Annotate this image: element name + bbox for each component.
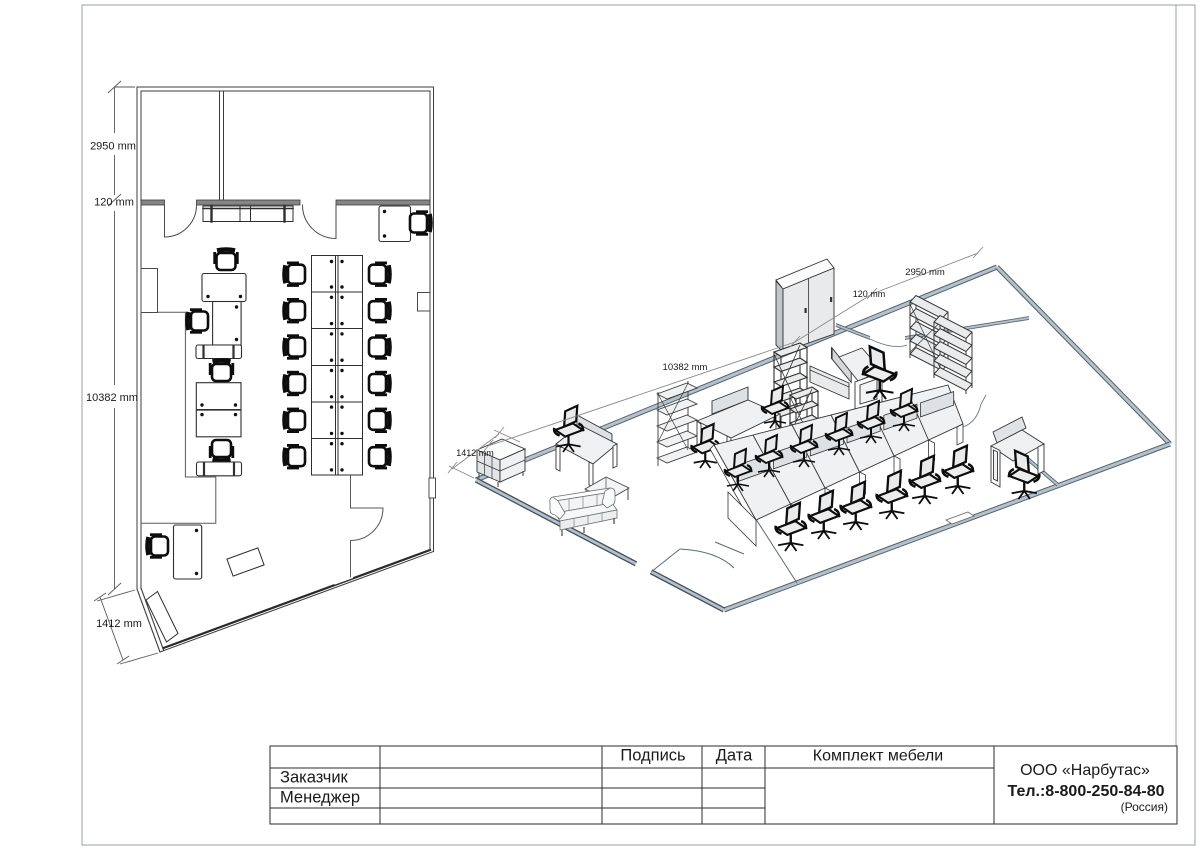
svg-text:Дата: Дата <box>716 747 753 765</box>
svg-text:1412 mm: 1412 mm <box>456 448 494 458</box>
svg-text:Тел.:8-800-250-84-80: Тел.:8-800-250-84-80 <box>1007 783 1164 800</box>
svg-text:120 mm: 120 mm <box>94 197 134 209</box>
svg-text:Комплект мебели: Комплект мебели <box>813 748 943 765</box>
svg-text:(Россия): (Россия) <box>1121 800 1168 814</box>
svg-text:Менеджер: Менеджер <box>280 789 360 807</box>
svg-text:Заказчик: Заказчик <box>280 769 349 787</box>
svg-text:10382 mm: 10382 mm <box>663 362 708 373</box>
svg-text:Подпись: Подпись <box>620 747 685 765</box>
svg-text:2950 mm: 2950 mm <box>905 267 945 278</box>
svg-text:ООО «Нарбутас»: ООО «Нарбутас» <box>1020 762 1150 779</box>
svg-text:10382 mm: 10382 mm <box>86 392 138 404</box>
svg-text:120 mm: 120 mm <box>853 289 886 299</box>
svg-text:2950 mm: 2950 mm <box>90 141 136 153</box>
svg-text:1412 mm: 1412 mm <box>96 618 142 630</box>
